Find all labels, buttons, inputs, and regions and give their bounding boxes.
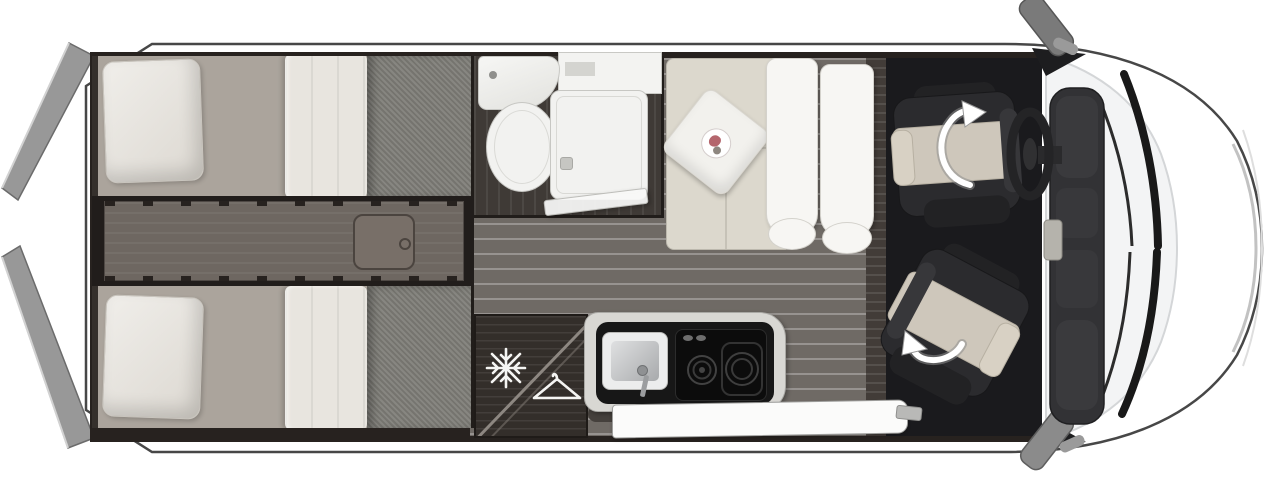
bathroom-cabinet <box>558 52 662 94</box>
burner-large-outer <box>726 353 758 385</box>
bed-duvet <box>367 286 474 428</box>
snowflake-strokes <box>487 349 525 387</box>
single-bed-top <box>92 56 474 196</box>
burner-large-frame <box>722 343 762 395</box>
driver-seat-swivelled <box>887 80 1029 231</box>
entry-door-step <box>612 399 908 438</box>
storage-hatch <box>353 214 415 270</box>
seat-armrest <box>923 195 1011 229</box>
console-slatted-top <box>104 201 464 281</box>
folded-blanket <box>285 286 367 428</box>
travel-seat-headrest-left <box>768 218 816 250</box>
rear-door-bottom-open <box>2 246 94 448</box>
sink-basin <box>611 341 659 381</box>
rear-door-top-open <box>2 43 94 200</box>
toilet <box>486 102 558 192</box>
hanger-icon <box>530 364 584 406</box>
folded-blanket <box>285 56 367 196</box>
bed-pillow <box>102 294 204 419</box>
door-rail-end <box>895 405 922 422</box>
kitchen-sink <box>602 332 668 390</box>
between-beds-console <box>92 196 474 286</box>
brand-emblem <box>695 122 737 164</box>
travel-seat-headrest-right <box>822 222 872 254</box>
snowflake-icon <box>484 346 528 390</box>
hanger-strokes <box>534 374 580 398</box>
single-bed-bottom <box>92 286 474 428</box>
cabinet-detail <box>565 62 595 76</box>
hob-burners-graphic <box>676 330 768 402</box>
fridge-wardrobe-cabinet <box>474 314 588 438</box>
kitchen-counter <box>584 312 786 412</box>
burner-large-inner <box>732 359 752 379</box>
seat-headrest <box>890 129 916 186</box>
shower-drain <box>560 157 573 170</box>
burner-small-center <box>699 367 705 373</box>
hob-knob-right <box>696 335 706 341</box>
hob-knob-left <box>683 335 693 341</box>
bed-duvet <box>367 56 474 196</box>
campervan-floorplan <box>0 0 1280 495</box>
travel-seat-backrest-left <box>766 58 818 236</box>
travel-seat-backrest-right <box>820 64 874 238</box>
bed-pillow <box>102 58 204 183</box>
shower-tray <box>550 90 648 200</box>
two-burner-hob <box>675 329 767 401</box>
